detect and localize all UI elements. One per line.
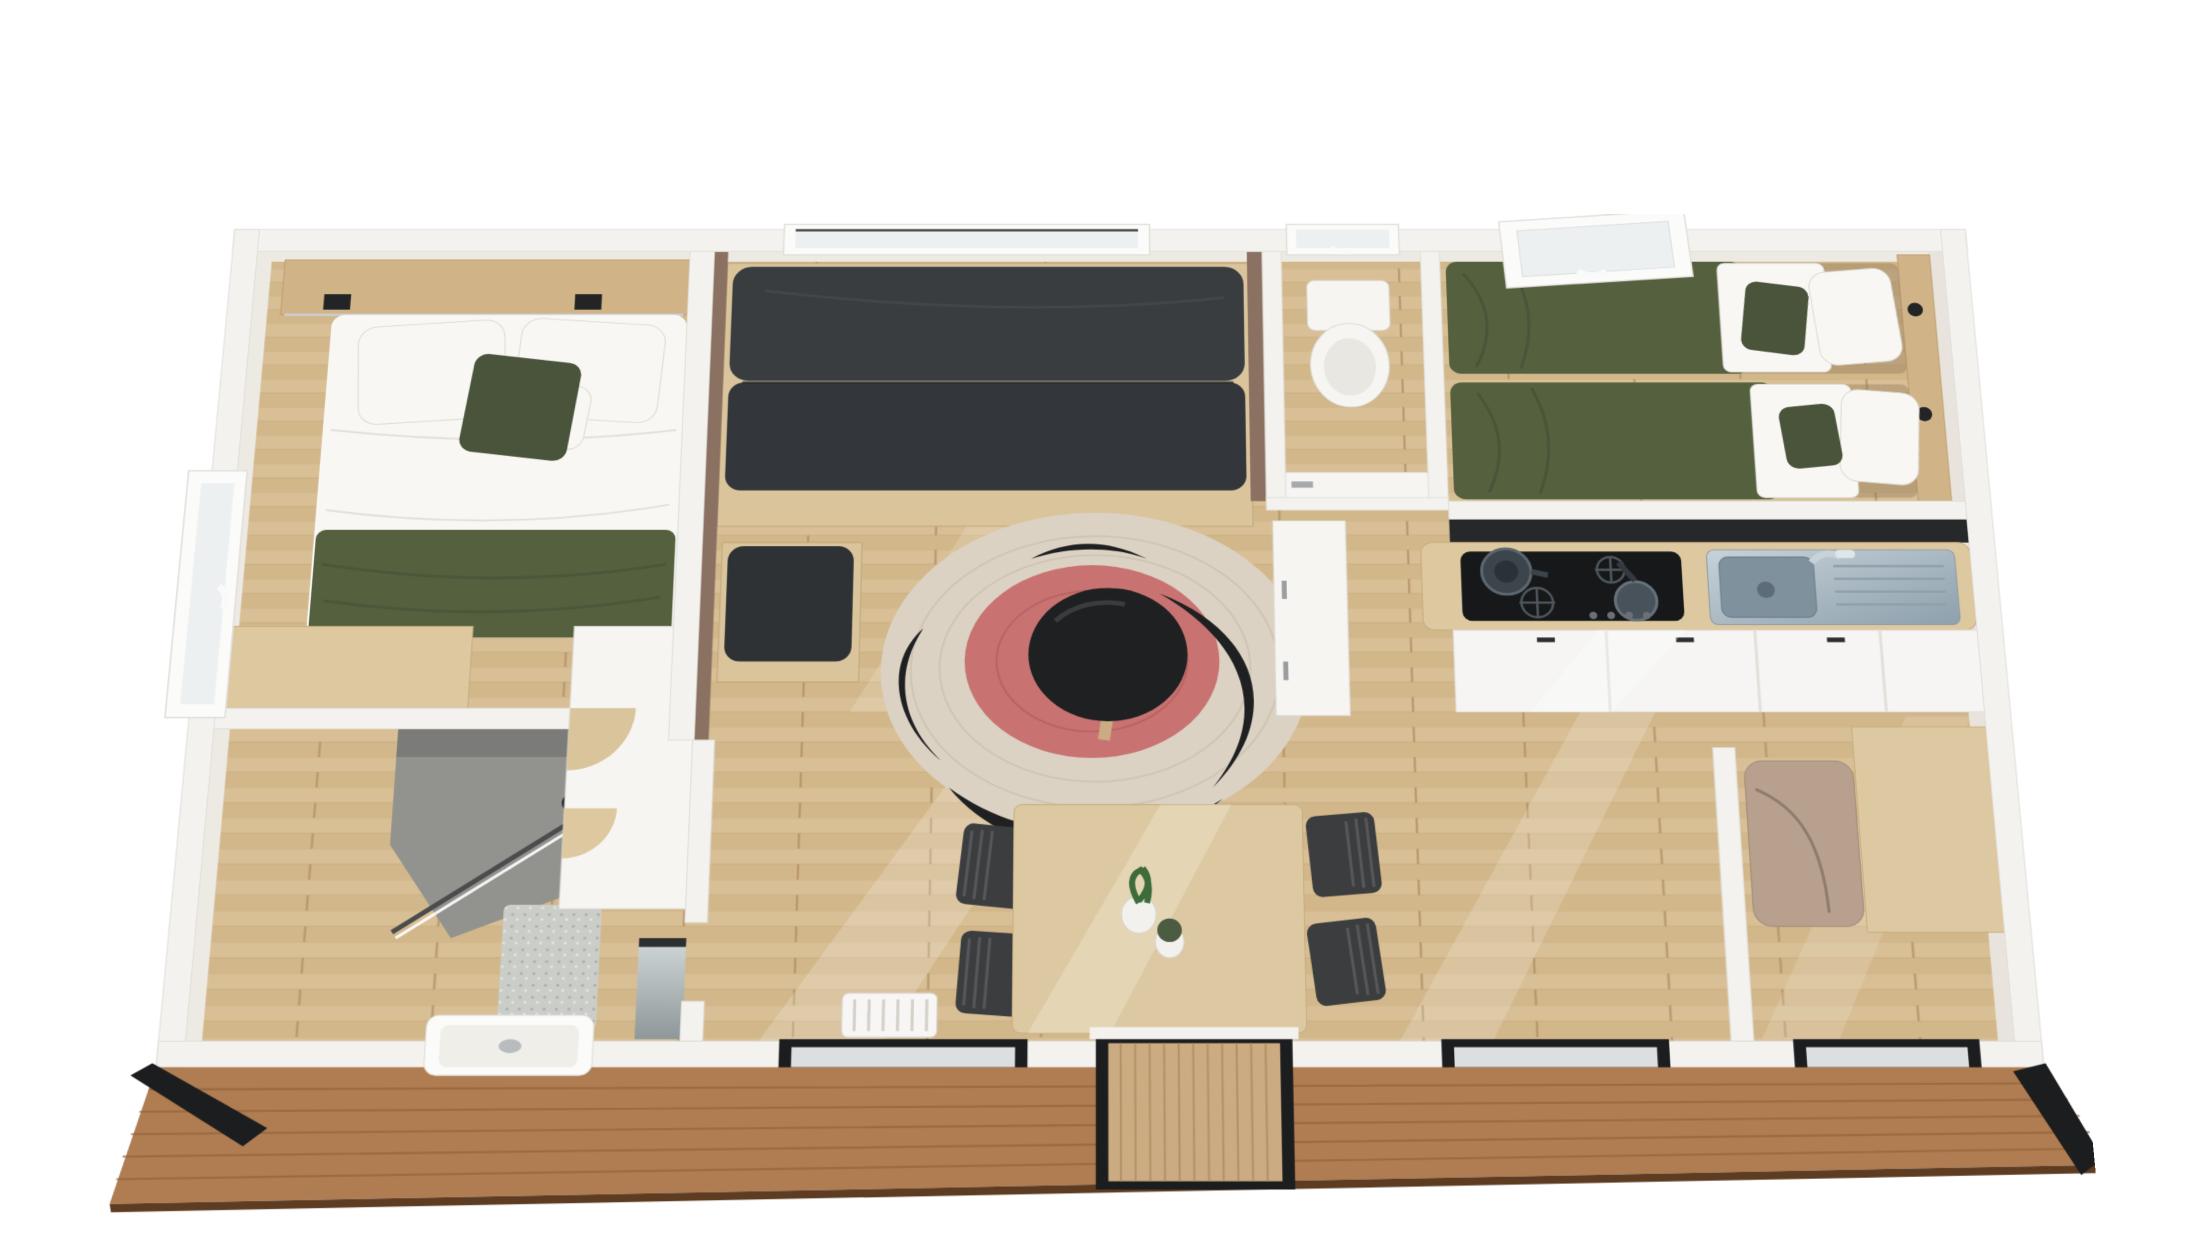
desk xyxy=(1852,727,2005,932)
green-cushion xyxy=(457,353,583,463)
mirror-frame-edge xyxy=(639,938,687,947)
bathroom-hall-wall-stub xyxy=(680,1001,704,1041)
pot-handle xyxy=(1531,572,1548,576)
skylight-window xyxy=(1499,214,1693,288)
pillow xyxy=(1806,267,1904,366)
mirror xyxy=(635,944,687,1039)
mobile-home-cutaway-scene xyxy=(100,214,2100,1216)
pillow xyxy=(1840,388,1919,486)
front-door-lintel xyxy=(1090,1027,1299,1039)
dining-chair xyxy=(1306,917,1388,1007)
window-glass xyxy=(1296,229,1390,248)
faucet-lever xyxy=(1835,550,1855,558)
fridge xyxy=(1744,761,1865,927)
sofa-seat-cushion xyxy=(725,383,1247,491)
backsplash xyxy=(1449,517,1969,542)
round-coffee-table xyxy=(1028,588,1188,721)
storage-cabinet xyxy=(1273,521,1351,716)
dining-chair xyxy=(1305,811,1383,897)
twin-bed-2 xyxy=(1450,383,1928,500)
cabinet-handle xyxy=(1283,662,1288,681)
sofa-back-cushion xyxy=(729,267,1245,381)
reading-lamp-icon xyxy=(574,294,602,309)
bed-end-blanket xyxy=(308,530,676,638)
floorplan-svg xyxy=(100,214,2100,1216)
kitchen-cabinet-fronts xyxy=(1453,630,1984,712)
toilet xyxy=(1307,280,1393,407)
dresser-counter xyxy=(216,626,473,708)
green-cushion xyxy=(1777,403,1844,470)
door-glass xyxy=(1806,1047,1969,1067)
front-door xyxy=(1090,1027,1302,1189)
floorplan-render-canvas xyxy=(0,0,2200,1238)
shower-tray xyxy=(423,1015,594,1075)
wc-door-handle xyxy=(1291,481,1313,487)
succulent-plant xyxy=(1157,919,1182,943)
kitchen xyxy=(1420,517,1985,712)
gas-hob xyxy=(1460,549,1685,621)
door-glass xyxy=(791,1047,1015,1067)
window-glass xyxy=(795,229,1138,248)
wc-window xyxy=(1286,224,1399,255)
door-glass xyxy=(1454,1047,1658,1067)
wc-front-wall xyxy=(1266,498,1448,511)
skylight-glass xyxy=(1517,221,1675,276)
bedroom1-bathroom-wall xyxy=(214,708,570,729)
frying-pan xyxy=(1614,582,1658,620)
cabinet-handle xyxy=(1282,581,1287,599)
living-room-window xyxy=(783,224,1149,255)
toilet-cistern xyxy=(1307,280,1391,330)
ottoman-cushion xyxy=(724,546,854,661)
reading-lamp-icon xyxy=(323,294,351,309)
bedroom2-kitchen-wall xyxy=(1448,501,1966,519)
radiator xyxy=(841,993,937,1037)
green-cushion xyxy=(1740,280,1809,356)
bath-mat xyxy=(497,905,602,1029)
kitchen-sink xyxy=(1706,550,1961,625)
